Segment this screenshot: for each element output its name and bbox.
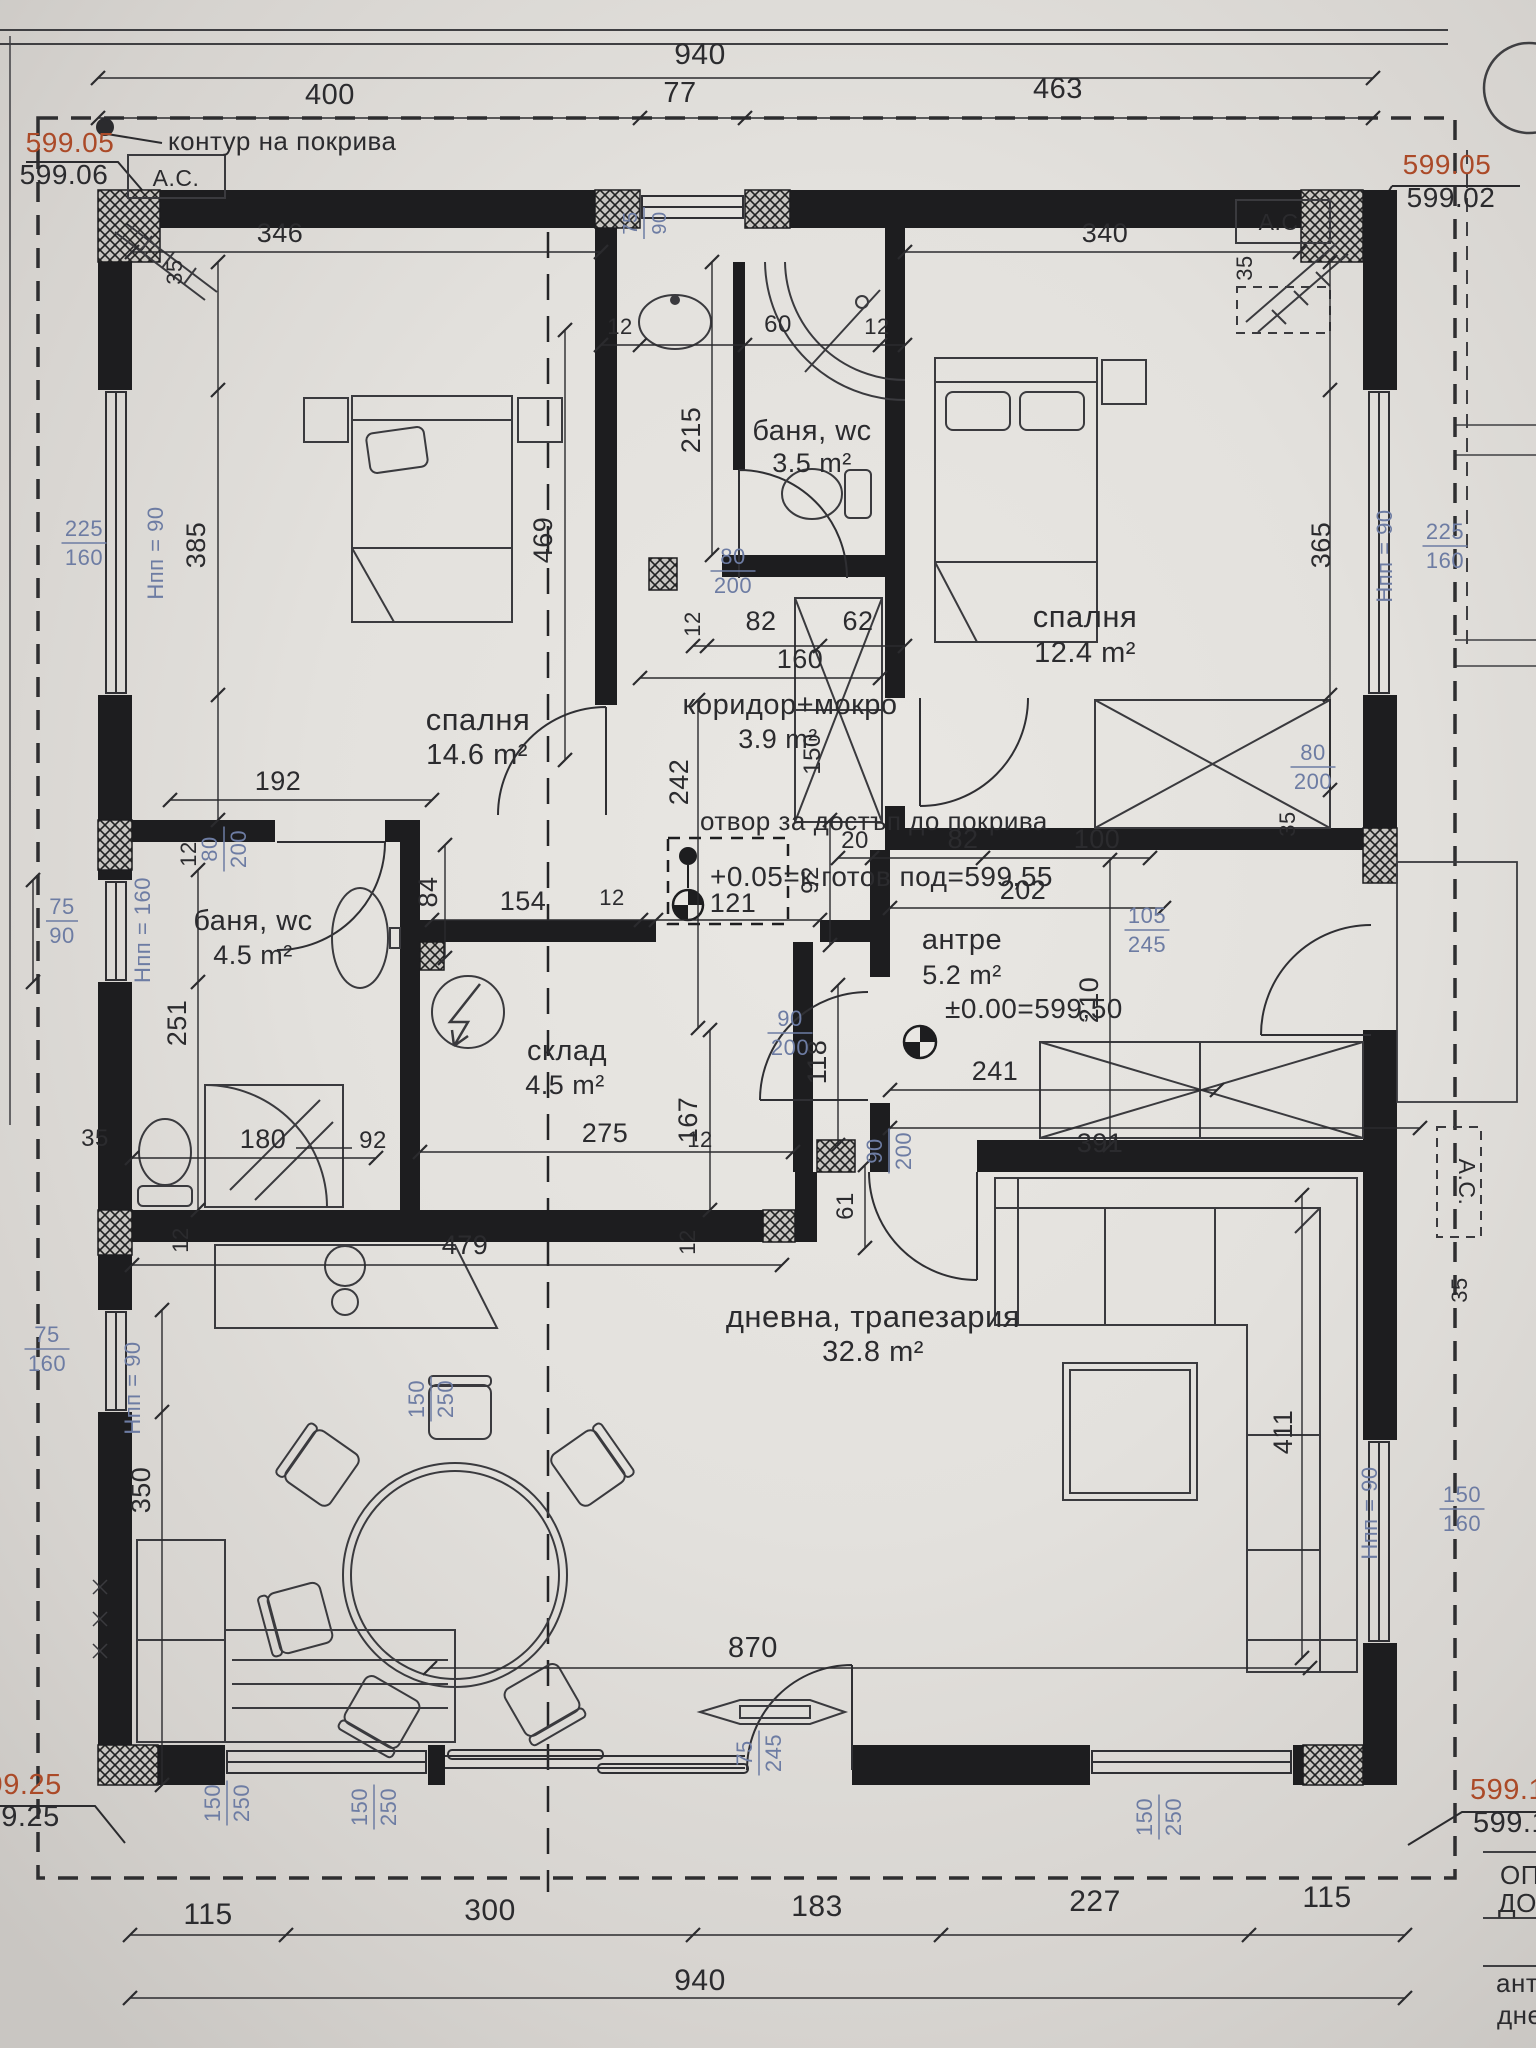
dim-12a: 12 [607,314,632,339]
dim-275: 275 [582,1118,629,1148]
room-living-name: дневна, трапезария [726,1299,1020,1334]
parapet-living: Hпп = 90 [1357,1466,1382,1559]
parapet-bedroom2: Hпп = 90 [1372,509,1397,602]
dim-12b: 12 [864,314,889,339]
window-size-bottom-4: 150250 [1132,1795,1186,1840]
room-antre-name: антре [922,924,1002,956]
dim-180: 180 [240,1124,287,1154]
dim-bottom-2: 300 [464,1894,516,1927]
svg-text:245: 245 [1128,932,1166,957]
svg-text:150: 150 [200,1784,225,1822]
elevation-br-roof: 599.13 [1470,1774,1536,1806]
door-antre-living [869,1172,977,1280]
room-antre-area: 5.2 m² [922,960,1002,990]
level-marker-antre [904,1026,936,1058]
dim-bottom-3: 183 [791,1890,843,1923]
room-bedroom2-name: спалня [1033,599,1138,634]
dim-411: 411 [1268,1410,1298,1455]
wardrobe-bedroom2 [1095,700,1330,828]
dim-215: 215 [676,407,706,454]
svg-text:150: 150 [1132,1798,1157,1836]
window-size-bath2: 7590 [46,894,78,948]
leader-lines [0,119,1536,1845]
svg-text:200: 200 [226,830,251,868]
svg-text:80: 80 [720,544,745,569]
dim-479: 479 [442,1230,489,1260]
window-size-bath1: 7590 [620,207,671,239]
svg-text:80: 80 [197,836,222,861]
dim-bottom-5: 115 [1302,1881,1351,1914]
doors [277,470,1371,1770]
dimension-lines [26,71,1427,2005]
dim-365: 365 [1306,522,1336,569]
svg-text:90: 90 [777,1006,802,1031]
dim-12g: 12 [168,1227,193,1252]
parapet-bedroom1: Hпп = 90 [143,506,168,599]
svg-text:200: 200 [891,1132,916,1170]
dim-12e: 12 [599,885,624,910]
dim-82b: 82 [947,824,978,854]
dim-385: 385 [181,522,211,569]
dim-350: 350 [126,1467,156,1514]
dim-62: 62 [842,606,873,636]
svg-text:80: 80 [1300,740,1325,765]
titleblock-row-2: ДО [1498,1888,1536,1918]
svg-text:200: 200 [771,1035,809,1060]
side-table [1063,1363,1197,1500]
room-corridor-name: коридор+мокро [682,689,897,721]
elevation-tl-floor: 599.06 [20,159,109,190]
floorplan-page: спалня14.6 m²баня, wc3.5 m²спалня12.4 m²… [0,0,1536,2048]
ac-label-top-right: A.C. [1259,209,1306,235]
tv-unit [700,1700,845,1724]
roof-contour-outline [38,118,1455,1878]
parapet-bath2: Hпп = 160 [130,877,155,983]
roof-contour-label: контур на покрива [168,126,397,156]
dim-35e: 35 [1447,1277,1472,1302]
ac-label-right: A.C. [1454,1159,1480,1206]
dim-35d: 35 [1275,811,1300,836]
dim-391: 391 [1077,1128,1124,1158]
dim-100: 100 [1074,824,1121,854]
window-size-bottom-1: 150250 [200,1781,254,1826]
dim-top-2: 77 [663,77,696,109]
svg-text:225: 225 [1426,519,1464,544]
dim-bottom-1: 115 [183,1898,232,1931]
sink-lobby [639,295,711,349]
dim-bottom-4: 227 [1069,1885,1121,1918]
svg-text:75: 75 [620,211,642,234]
windows [106,196,1389,1773]
room-bath1-area: 3.5 m² [772,448,852,478]
roof-access-label: отвор за достъп до покрива [700,806,1048,836]
dim-top-1: 400 [305,79,355,111]
svg-text:225: 225 [65,516,103,541]
dim-192: 192 [255,766,302,796]
callout-circle [1484,43,1536,133]
dim-202: 202 [1000,875,1047,905]
door-bedroom2 [920,698,1028,806]
cooktop-burner [325,1246,365,1286]
titleblock-row-1: ОП [1500,1860,1536,1890]
nightstand [304,398,348,442]
svg-text:250: 250 [433,1380,458,1418]
window-size-bottom-3: 150250 [404,1377,458,1422]
svg-text:250: 250 [229,1784,254,1822]
electrical-panel-icon [432,976,504,1048]
dim-35a: 35 [81,1125,109,1152]
room-bedroom1-area: 14.6 m² [426,739,528,771]
svg-text:245: 245 [761,1734,786,1772]
dim-340: 340 [1082,218,1129,248]
svg-text:75: 75 [49,894,74,919]
dim-12c: 12 [680,611,705,636]
svg-text:150: 150 [404,1380,429,1418]
svg-text:105: 105 [1128,903,1166,928]
room-living-area: 32.8 m² [822,1336,924,1368]
svg-text:200: 200 [714,573,752,598]
dim-20: 20 [841,827,869,854]
svg-text:75: 75 [732,1740,757,1765]
dim-150h: 150 [799,733,826,775]
dim-870: 870 [728,1632,778,1664]
dim-92a: 92 [797,866,824,894]
dim-bottom-total: 940 [674,1964,726,1997]
elevation-tr-roof: 599.05 [1403,149,1492,180]
dim-346: 346 [257,218,304,248]
sliding-panel-1 [448,1750,603,1759]
room-bath2-name: баня, wc [193,905,312,937]
dining-chairs [257,1376,635,1759]
elevation-tr-floor: 599.02 [1407,182,1496,213]
window-size-bedroom2: 225160 [1423,519,1468,573]
bed-bedroom1 [352,396,512,622]
dim-82a: 82 [745,606,776,636]
dim-160: 160 [777,644,824,674]
room-bedroom1-name: спалня [426,702,531,737]
svg-text:150: 150 [1443,1482,1481,1507]
parapet-kitchen: Hпп = 90 [120,1341,145,1434]
svg-text:160: 160 [1426,548,1464,573]
nightstand [518,398,562,442]
dim-241: 241 [972,1056,1019,1086]
door-size-bedroom2: 80200 [1291,740,1336,794]
svg-text:150: 150 [347,1788,372,1826]
ac-label-top-left: A.C. [153,165,200,191]
room-bath1-name: баня, wc [752,415,871,447]
cooktop-burner [332,1289,358,1315]
dim-60: 60 [764,311,792,338]
dim-154: 154 [500,886,547,916]
room-bedroom2-area: 12.4 m² [1034,637,1136,669]
floorplan-drawing: спалня14.6 m²баня, wc3.5 m²спалня12.4 m²… [0,0,1536,2048]
svg-text:75: 75 [34,1322,59,1347]
dim-251: 251 [162,1000,192,1047]
dim-92b: 92 [359,1127,387,1154]
dim-210: 210 [1074,977,1104,1024]
dim-84: 84 [413,876,443,907]
titleblock-row-4: дне [1497,2000,1536,2030]
room-storage-area: 4.5 m² [525,1070,605,1100]
window-size-bottom-2: 150250 [347,1785,401,1830]
dim-top-3: 463 [1033,73,1083,105]
svg-text:160: 160 [65,545,103,570]
titleblock-row-3: ант [1496,1968,1536,1998]
door-size-bedroom1: 80200 [711,544,756,598]
door-entrance [1261,925,1371,1035]
dim-12f: 12 [687,1127,712,1152]
svg-text:160: 160 [28,1351,66,1376]
nightstand [1102,360,1146,404]
window-size-living: 150160 [1440,1482,1485,1536]
dim-35c: 35 [1232,255,1257,280]
room-bath2-area: 4.5 m² [213,940,293,970]
svg-text:90: 90 [862,1138,887,1163]
wall-piers-hatched [98,190,1397,1785]
dim-12h: 12 [675,1229,700,1254]
kitchen-cabinets [137,1540,455,1742]
svg-text:90: 90 [49,923,74,948]
elevation-bl-floor: 599.25 [0,1801,60,1833]
elevation-bl-roof: 599.25 [0,1769,62,1801]
elevation-br-floor: 599.13 [1473,1807,1536,1839]
svg-text:90: 90 [649,211,671,234]
svg-text:250: 250 [376,1788,401,1826]
svg-text:160: 160 [1443,1511,1481,1536]
svg-text:250: 250 [1161,1798,1186,1836]
toilet-bath2 [138,1119,192,1206]
entrance-porch [1397,862,1517,1102]
dim-61: 61 [832,1192,859,1220]
window-size-bedroom1: 225160 [62,516,107,570]
door-size-entrance: 105245 [1125,903,1170,957]
dim-35b: 35 [162,259,187,284]
svg-text:200: 200 [1294,769,1332,794]
exterior-walls [98,190,1397,1785]
window-size-kitchen: 75160 [25,1322,70,1376]
dim-121: 121 [710,888,757,918]
room-storage-name: склад [527,1035,607,1067]
dim-242: 242 [664,759,694,806]
dim-469: 469 [528,517,558,564]
elevation-tl-roof: 599.05 [26,127,115,158]
dim-top-total: 940 [674,38,726,71]
